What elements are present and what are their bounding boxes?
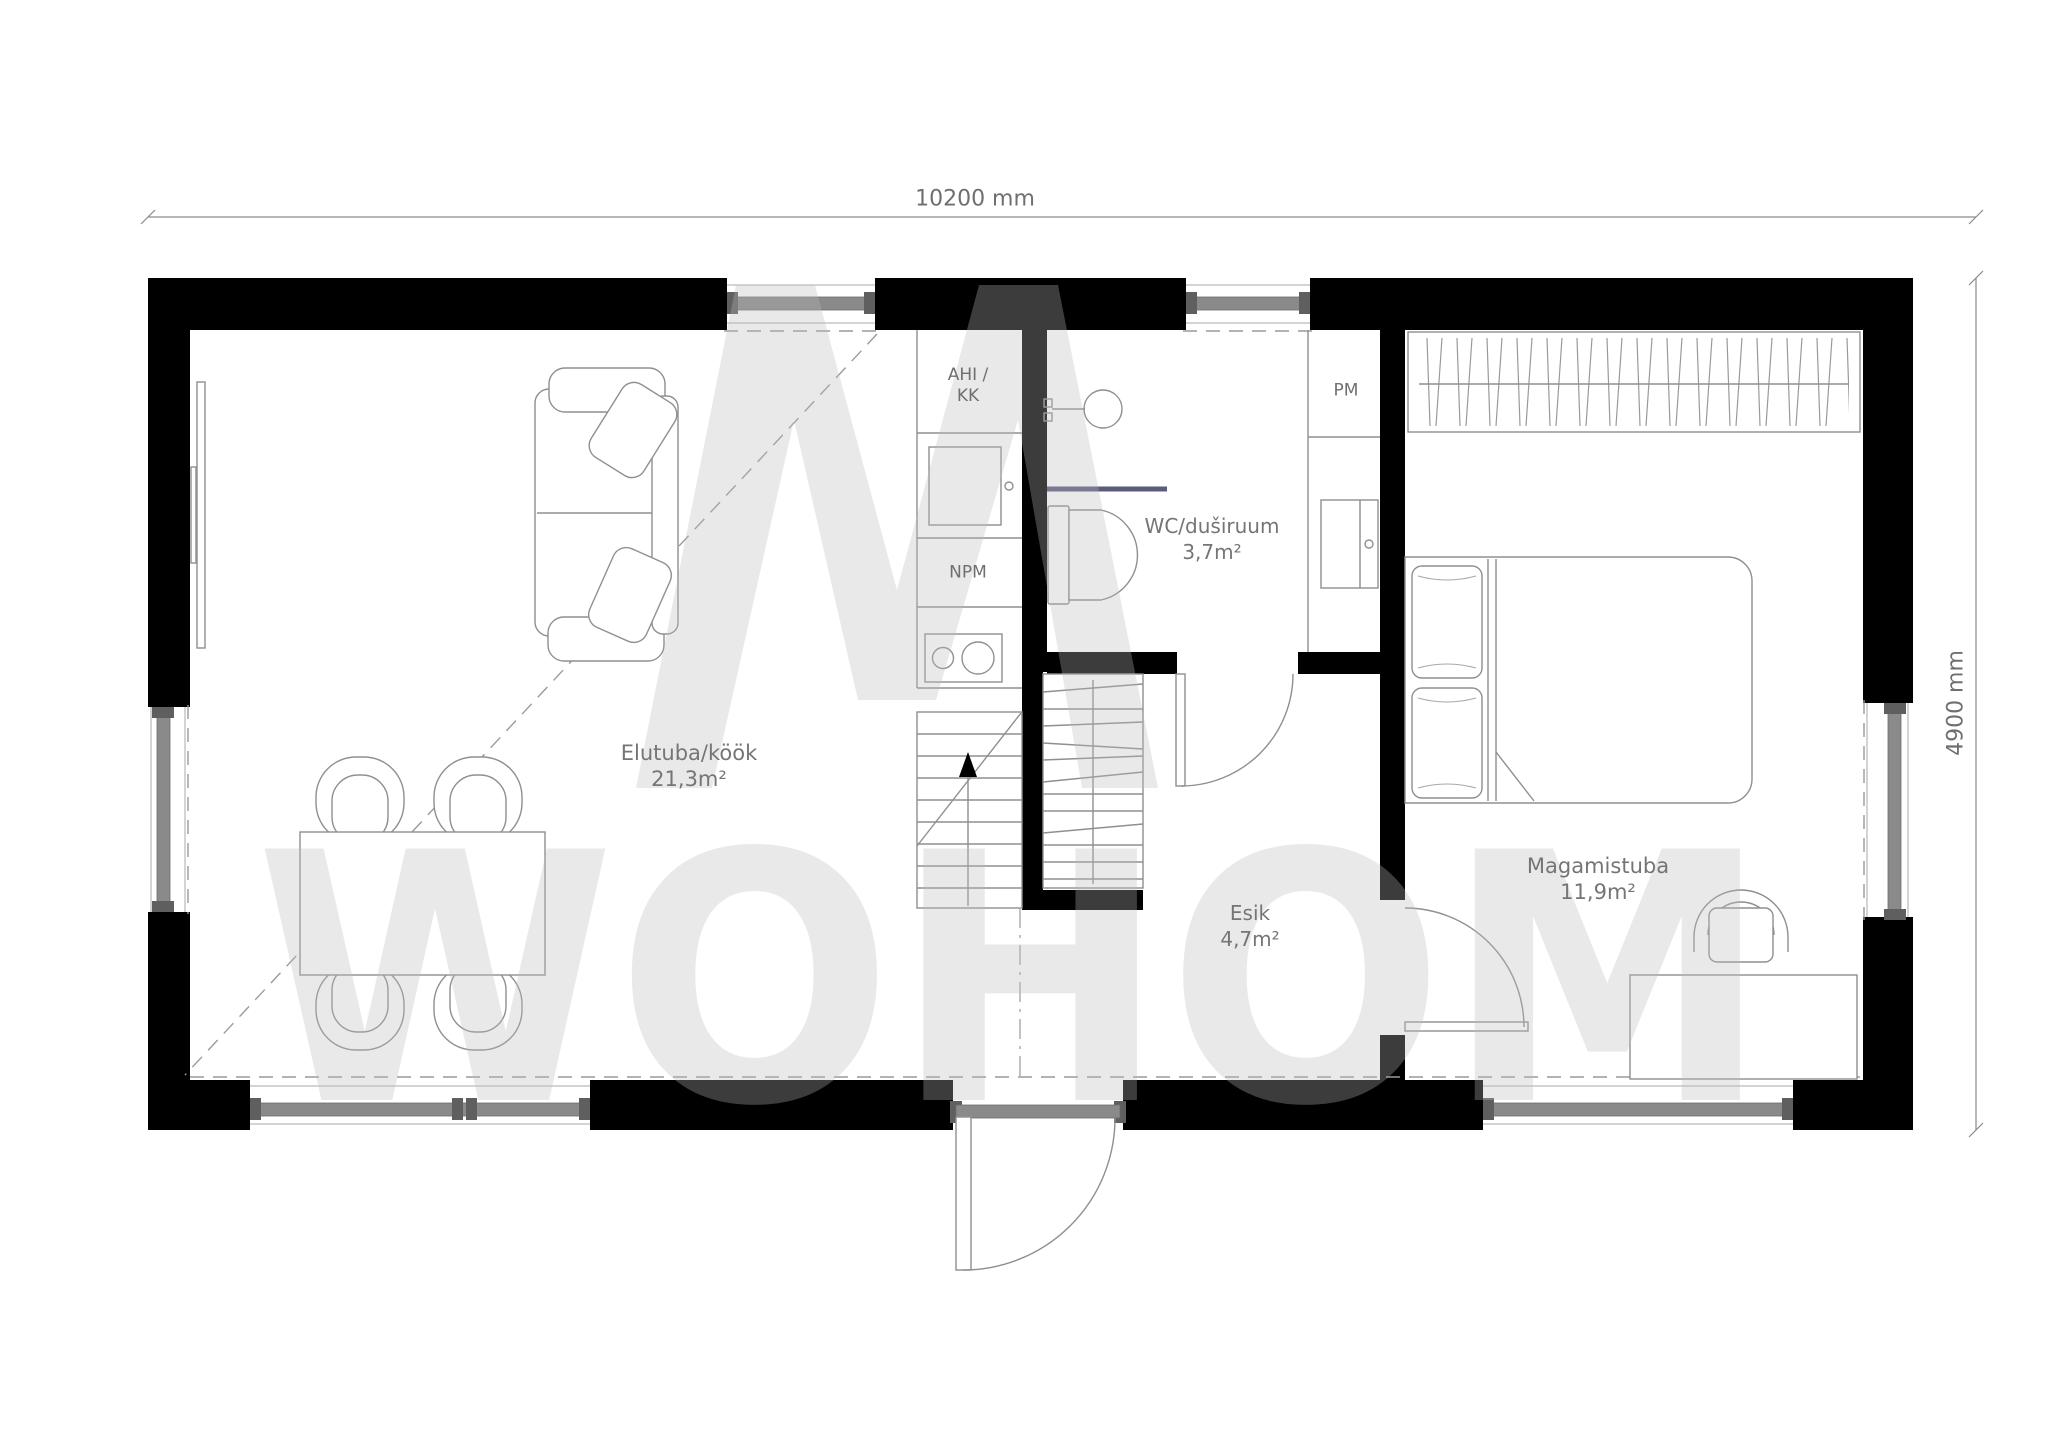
tv-screen <box>197 382 205 648</box>
floor-plan-drawing: WOHOM <box>0 0 2048 1448</box>
wc-door-swing-arc <box>1181 674 1293 786</box>
tv-mount <box>191 467 196 563</box>
sofa <box>535 368 682 661</box>
room-area: 4,7m² <box>1220 926 1279 952</box>
room-label-bathroom: WC/duširuum 3,7m² <box>1145 513 1280 565</box>
room-name: Elutuba/köök <box>621 740 758 766</box>
room-area: 21,3m² <box>621 766 758 792</box>
appliance-label-oven: AHI / KK <box>948 365 989 407</box>
room-label-bedroom: Magamistuba 11,9m² <box>1527 853 1669 905</box>
wall-top-right <box>1310 278 1913 330</box>
bed <box>1405 557 1752 803</box>
room-name: Magamistuba <box>1527 853 1669 879</box>
tv <box>191 382 205 648</box>
wall-right-upper <box>1863 278 1913 703</box>
watermark-text: WOHOM <box>255 781 1770 1182</box>
dimension-height-label: 4900 mm <box>1944 650 1969 756</box>
window-top-2 <box>1183 285 1313 331</box>
washing-machine <box>1321 500 1378 588</box>
wardrobe <box>1408 332 1860 432</box>
wardrobe-hangers <box>1419 338 1849 426</box>
room-label-living: Elutuba/köök 21,3m² <box>621 740 758 792</box>
oven-knob <box>1005 482 1013 490</box>
bed-pillow-1 <box>1412 566 1482 678</box>
room-name: WC/duširuum <box>1145 513 1280 539</box>
window-left <box>151 705 188 914</box>
room-area: 3,7m² <box>1145 539 1280 565</box>
wall-right-lower <box>1863 917 1913 1130</box>
appliance-label-dishwasher: NPM <box>949 563 987 584</box>
wall-top-left <box>148 278 727 330</box>
appliance-label-washing-machine: PM <box>1334 381 1359 402</box>
wc-door-leaf <box>1176 674 1185 786</box>
floor-plan-canvas: WOHOM 10200 mm 4900 mm Elutuba/köök 21,3… <box>0 0 2048 1448</box>
dimension-width-label: 10200 mm <box>915 187 1035 212</box>
room-area: 11,9m² <box>1527 879 1669 905</box>
watermark-logo-m <box>636 285 1158 788</box>
room-name: Esik <box>1220 900 1279 926</box>
room-label-hallway: Esik 4,7m² <box>1220 900 1279 952</box>
wall-left-lower <box>148 912 190 1130</box>
window-right <box>1864 700 1908 920</box>
wc-door <box>1176 674 1293 786</box>
wall-left-upper <box>148 278 190 707</box>
laundry-nook <box>1308 330 1380 652</box>
